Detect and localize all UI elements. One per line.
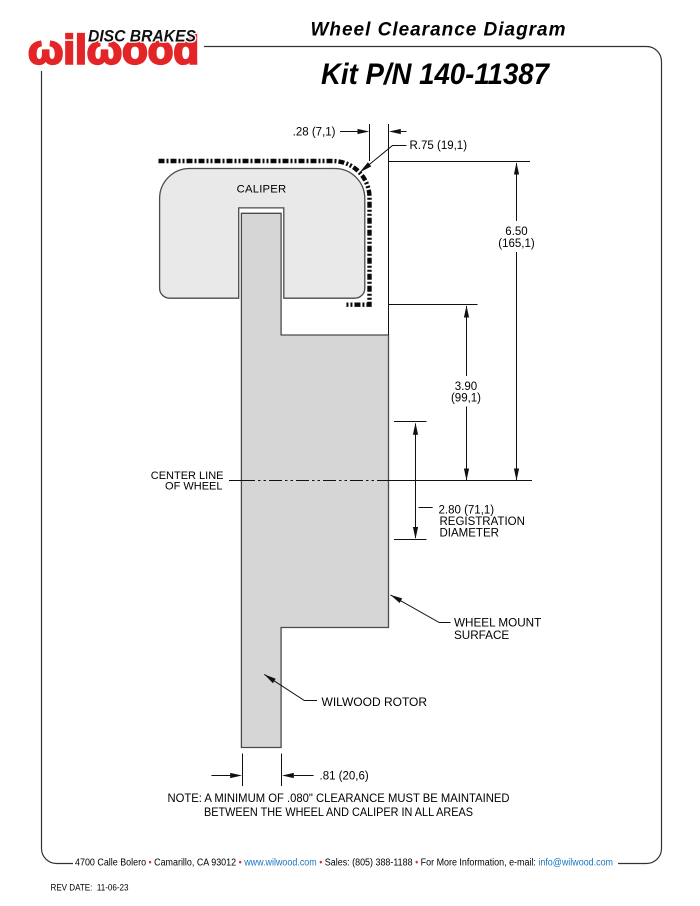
- svg-text:DISC BRAKES: DISC BRAKES: [88, 28, 196, 46]
- svg-text:SURFACE: SURFACE: [454, 629, 509, 642]
- svg-text:OF WHEEL: OF WHEEL: [165, 481, 222, 493]
- svg-text:CALIPER: CALIPER: [237, 184, 287, 196]
- svg-text:Kit P/N 140-11387: Kit P/N 140-11387: [321, 58, 550, 91]
- svg-text:WILWOOD ROTOR: WILWOOD ROTOR: [322, 695, 428, 709]
- svg-text:BETWEEN THE WHEEL AND CALIPER: BETWEEN THE WHEEL AND CALIPER IN ALL ARE…: [204, 805, 473, 819]
- svg-text:.28 (7,1): .28 (7,1): [293, 126, 336, 138]
- svg-text:DIAMETER: DIAMETER: [440, 527, 499, 539]
- svg-text:NOTE: A MINIMUM OF .080" CLEAR: NOTE: A MINIMUM OF .080" CLEARANCE MUST …: [168, 791, 510, 805]
- svg-text:6.50: 6.50: [505, 226, 527, 238]
- svg-text:2.80 (71,1): 2.80 (71,1): [439, 505, 495, 517]
- svg-text:R.75 (19,1): R.75 (19,1): [410, 140, 468, 152]
- svg-text:3.90: 3.90: [455, 381, 477, 393]
- svg-text:.81 (20,6): .81 (20,6): [320, 770, 369, 782]
- svg-text:WHEEL MOUNT: WHEEL MOUNT: [454, 617, 541, 630]
- svg-text:REV DATE: 11-06-23: REV DATE: 11-06-23: [51, 882, 129, 892]
- svg-text:Wheel Clearance Diagram: Wheel Clearance Diagram: [311, 19, 566, 40]
- svg-text:4700 Calle Bolero • Camarillo,: 4700 Calle Bolero • Camarillo, CA 93012 …: [75, 858, 613, 869]
- svg-text:(99,1): (99,1): [451, 393, 481, 405]
- svg-text:(165,1): (165,1): [498, 238, 535, 250]
